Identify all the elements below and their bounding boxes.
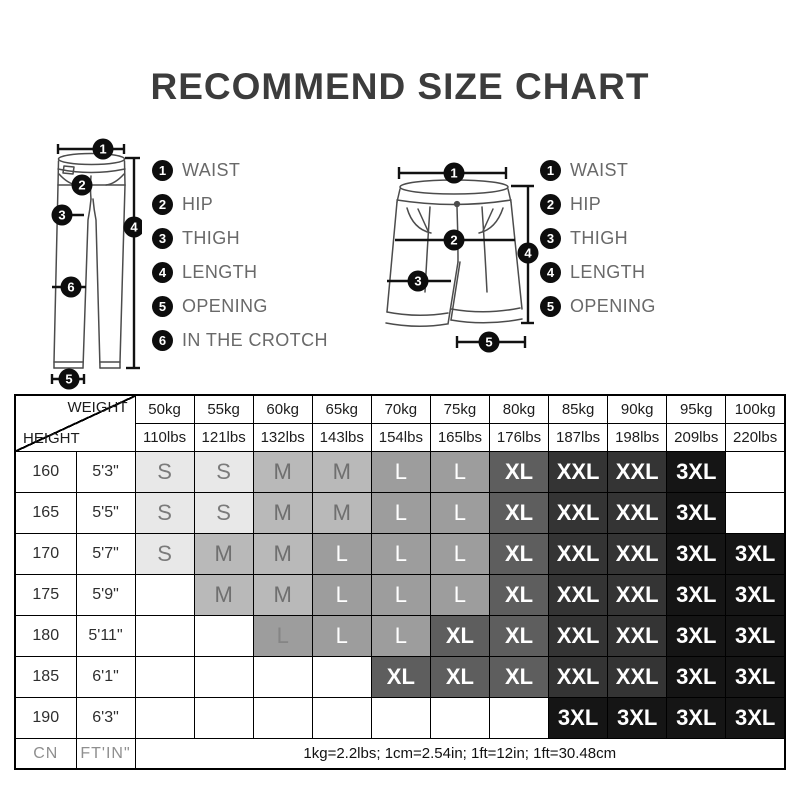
legend-label: THIGH [182, 228, 240, 249]
callout-6-marker: 6 [61, 277, 82, 298]
weight-axis-label: WEIGHT [68, 399, 128, 416]
legend-label: OPENING [570, 296, 656, 317]
weight-lbs-header: 187lbs [549, 424, 608, 452]
weight-kg-header: 60kg [253, 395, 312, 424]
size-chart-table: WEIGHTHEIGHT50kg55kg60kg65kg70kg75kg80kg… [14, 394, 786, 770]
legend-label: OPENING [182, 296, 268, 317]
size-cell-empty [253, 657, 312, 698]
size-cell-empty [135, 698, 194, 739]
page-title: RECOMMEND SIZE CHART [0, 66, 800, 108]
legend-item-length: 4LENGTH [540, 255, 656, 289]
callout-4-icon: 4 [540, 262, 561, 283]
size-cell-xl: XL [489, 534, 548, 575]
callout-4-marker: 4 [124, 217, 143, 238]
size-cell-l: L [312, 575, 371, 616]
size-cell-l: L [371, 616, 430, 657]
weight-kg-header: 50kg [135, 395, 194, 424]
callout-3-icon: 3 [540, 228, 561, 249]
table-row-175: 1755'9"MMLLLXLXXLXXL3XL3XL [15, 575, 785, 616]
callout-1-icon: 1 [152, 160, 173, 181]
callout-5-icon: 5 [152, 296, 173, 317]
callout-2-icon: 2 [540, 194, 561, 215]
legend-item-hip: 2HIP [540, 187, 656, 221]
size-cell-empty [135, 616, 194, 657]
height-cn-cell: 180 [15, 616, 76, 657]
height-cn-cell: 175 [15, 575, 76, 616]
weight-kg-header: 70kg [371, 395, 430, 424]
svg-text:4: 4 [130, 220, 138, 235]
height-cn-cell: 165 [15, 493, 76, 534]
legend-label: IN THE CROTCH [182, 330, 328, 351]
table-row-160: 1605'3"SSMMLLXLXXLXXL3XL [15, 452, 785, 493]
svg-text:3: 3 [58, 208, 65, 223]
weight-lbs-header: 198lbs [608, 424, 667, 452]
unit-ftin-cell: FT'IN" [76, 739, 135, 770]
weight-lbs-header: 165lbs [430, 424, 489, 452]
corner-weight-height-cell: WEIGHTHEIGHT [15, 395, 135, 452]
size-cell-xl: XL [430, 657, 489, 698]
size-cell-m: M [253, 493, 312, 534]
size-cell-xl: XL [489, 452, 548, 493]
table-row-190: 1906'3"3XL3XL3XL3XL [15, 698, 785, 739]
size-cell-3xl: 3XL [726, 616, 785, 657]
size-cell-xxl: XXL [608, 452, 667, 493]
table-row-170: 1705'7"SMMLLLXLXXLXXL3XL3XL [15, 534, 785, 575]
size-cell-3xl: 3XL [667, 698, 726, 739]
size-cell-l: L [430, 452, 489, 493]
callout-2-marker: 2 [444, 230, 465, 251]
size-cell-xl: XL [489, 575, 548, 616]
size-cell-xl: XL [430, 616, 489, 657]
height-ftin-cell: 5'3" [76, 452, 135, 493]
legend-item-waist: 1WAIST [540, 153, 656, 187]
size-cell-xxl: XXL [549, 657, 608, 698]
size-cell-l: L [371, 493, 430, 534]
callout-6-icon: 6 [152, 330, 173, 351]
unit-cn-cell: CN [15, 739, 76, 770]
size-cell-m: M [253, 534, 312, 575]
weight-kg-header: 80kg [489, 395, 548, 424]
size-cell-3xl: 3XL [667, 616, 726, 657]
weight-lbs-header: 121lbs [194, 424, 253, 452]
callout-3-marker: 3 [52, 205, 73, 226]
height-ftin-cell: 5'9" [76, 575, 135, 616]
size-cell-empty [194, 698, 253, 739]
svg-text:1: 1 [450, 166, 457, 181]
size-cell-empty [489, 698, 548, 739]
weight-lbs-header: 176lbs [489, 424, 548, 452]
callout-1-marker: 1 [93, 139, 114, 160]
weight-kg-header: 85kg [549, 395, 608, 424]
size-cell-xl: XL [489, 493, 548, 534]
size-cell-xxl: XXL [608, 534, 667, 575]
size-cell-s: S [135, 493, 194, 534]
size-cell-xxl: XXL [608, 657, 667, 698]
size-chart-page: RECOMMEND SIZE CHART [0, 0, 800, 800]
callout-4-marker: 4 [518, 243, 539, 264]
size-cell-l: L [312, 534, 371, 575]
size-cell-3xl: 3XL [726, 698, 785, 739]
table-row-180: 1805'11"LLLXLXLXXLXXL3XL3XL [15, 616, 785, 657]
size-cell-s: S [135, 534, 194, 575]
size-cell-xl: XL [489, 616, 548, 657]
size-cell-l: L [371, 452, 430, 493]
size-cell-l: L [430, 493, 489, 534]
size-cell-3xl: 3XL [608, 698, 667, 739]
size-cell-3xl: 3XL [726, 575, 785, 616]
height-cn-cell: 160 [15, 452, 76, 493]
size-cell-l: L [430, 534, 489, 575]
size-cell-m: M [194, 534, 253, 575]
table-row-185: 1856'1"XLXLXLXXLXXL3XL3XL [15, 657, 785, 698]
weight-kg-header: 65kg [312, 395, 371, 424]
pants-diagram: 1 2 3 4 5 6 [46, 138, 142, 395]
svg-text:5: 5 [485, 335, 492, 350]
svg-text:1: 1 [99, 142, 106, 157]
legend-item-waist: 1WAIST [152, 153, 328, 187]
legend-item-in-the-crotch: 6IN THE CROTCH [152, 323, 328, 357]
size-cell-empty [194, 657, 253, 698]
size-cell-m: M [312, 493, 371, 534]
weight-kg-header: 75kg [430, 395, 489, 424]
svg-text:3: 3 [414, 274, 421, 289]
size-cell-xl: XL [371, 657, 430, 698]
weight-kg-header: 90kg [608, 395, 667, 424]
size-cell-3xl: 3XL [726, 534, 785, 575]
shorts-diagram: 1 2 3 4 5 [385, 162, 560, 367]
size-cell-l: L [312, 616, 371, 657]
size-cell-xl: XL [489, 657, 548, 698]
size-cell-empty [135, 575, 194, 616]
legend-item-opening: 5OPENING [540, 289, 656, 323]
legend-item-length: 4LENGTH [152, 255, 328, 289]
height-cn-cell: 185 [15, 657, 76, 698]
height-ftin-cell: 5'7" [76, 534, 135, 575]
height-cn-cell: 190 [15, 698, 76, 739]
size-cell-xxl: XXL [608, 616, 667, 657]
legend-label: HIP [570, 194, 601, 215]
size-cell-empty [726, 493, 785, 534]
height-ftin-cell: 6'1" [76, 657, 135, 698]
size-cell-xxl: XXL [549, 493, 608, 534]
size-cell-m: M [194, 575, 253, 616]
weight-lbs-header: 220lbs [726, 424, 785, 452]
size-cell-empty [371, 698, 430, 739]
legend-item-hip: 2HIP [152, 187, 328, 221]
legend-label: WAIST [182, 160, 240, 181]
shorts-legend: 1WAIST2HIP3THIGH4LENGTH5OPENING [540, 153, 656, 323]
svg-text:4: 4 [524, 246, 532, 261]
size-cell-xxl: XXL [549, 534, 608, 575]
callout-2-icon: 2 [152, 194, 173, 215]
callout-1-icon: 1 [540, 160, 561, 181]
size-cell-empty [726, 452, 785, 493]
legend-label: LENGTH [570, 262, 645, 283]
size-cell-empty [194, 616, 253, 657]
size-cell-empty [135, 657, 194, 698]
legend-item-opening: 5OPENING [152, 289, 328, 323]
size-cell-xxl: XXL [549, 452, 608, 493]
height-ftin-cell: 6'3" [76, 698, 135, 739]
weight-kg-header: 100kg [726, 395, 785, 424]
size-cell-xxl: XXL [608, 493, 667, 534]
size-cell-xxl: XXL [549, 616, 608, 657]
pants-line-drawing: 1 2 3 4 5 6 [46, 138, 142, 390]
legend-label: LENGTH [182, 262, 257, 283]
legend-item-thigh: 3THIGH [152, 221, 328, 255]
callout-5-marker: 5 [479, 332, 500, 353]
size-cell-3xl: 3XL [667, 575, 726, 616]
callout-1-marker: 1 [444, 163, 465, 184]
weight-lbs-header: 154lbs [371, 424, 430, 452]
weight-lbs-header: 209lbs [667, 424, 726, 452]
conversion-note: 1kg=2.2lbs; 1cm=2.54in; 1ft=12in; 1ft=30… [135, 739, 785, 770]
weight-kg-header: 55kg [194, 395, 253, 424]
callout-3-icon: 3 [152, 228, 173, 249]
height-ftin-cell: 5'11" [76, 616, 135, 657]
size-cell-xxl: XXL [549, 575, 608, 616]
size-cell-3xl: 3XL [667, 534, 726, 575]
callout-3-marker: 3 [408, 271, 429, 292]
weight-lbs-header: 132lbs [253, 424, 312, 452]
size-cell-m: M [312, 452, 371, 493]
callout-5-marker: 5 [59, 369, 80, 390]
legend-label: THIGH [570, 228, 628, 249]
svg-text:6: 6 [67, 280, 74, 295]
weight-lbs-header: 110lbs [135, 424, 194, 452]
weight-lbs-header: 143lbs [312, 424, 371, 452]
size-cell-m: M [253, 575, 312, 616]
pants-legend: 1WAIST2HIP3THIGH4LENGTH5OPENING6IN THE C… [152, 153, 328, 357]
size-cell-s: S [135, 452, 194, 493]
size-cell-s: S [194, 452, 253, 493]
size-cell-3xl: 3XL [726, 657, 785, 698]
height-ftin-cell: 5'5" [76, 493, 135, 534]
size-cell-3xl: 3XL [667, 452, 726, 493]
callout-4-icon: 4 [152, 262, 173, 283]
svg-text:2: 2 [450, 233, 457, 248]
size-cell-xxl: XXL [608, 575, 667, 616]
size-cell-3xl: 3XL [667, 657, 726, 698]
svg-text:2: 2 [78, 178, 85, 193]
shorts-line-drawing: 1 2 3 4 5 [385, 162, 560, 362]
svg-text:5: 5 [65, 372, 72, 387]
callout-2-marker: 2 [72, 175, 93, 196]
size-cell-empty [312, 698, 371, 739]
size-cell-3xl: 3XL [549, 698, 608, 739]
height-cn-cell: 170 [15, 534, 76, 575]
size-cell-l: L [430, 575, 489, 616]
size-cell-empty [253, 698, 312, 739]
table-row-165: 1655'5"SSMMLLXLXXLXXL3XL [15, 493, 785, 534]
weight-kg-header: 95kg [667, 395, 726, 424]
legend-label: HIP [182, 194, 213, 215]
size-cell-l: L [371, 575, 430, 616]
size-cell-empty [312, 657, 371, 698]
size-cell-l: L [371, 534, 430, 575]
size-cell-m: M [253, 452, 312, 493]
legend-label: WAIST [570, 160, 628, 181]
height-axis-label: HEIGHT [23, 430, 80, 447]
callout-5-icon: 5 [540, 296, 561, 317]
size-cell-l: L [253, 616, 312, 657]
size-cell-3xl: 3XL [667, 493, 726, 534]
size-cell-empty [430, 698, 489, 739]
legend-item-thigh: 3THIGH [540, 221, 656, 255]
size-cell-s: S [194, 493, 253, 534]
